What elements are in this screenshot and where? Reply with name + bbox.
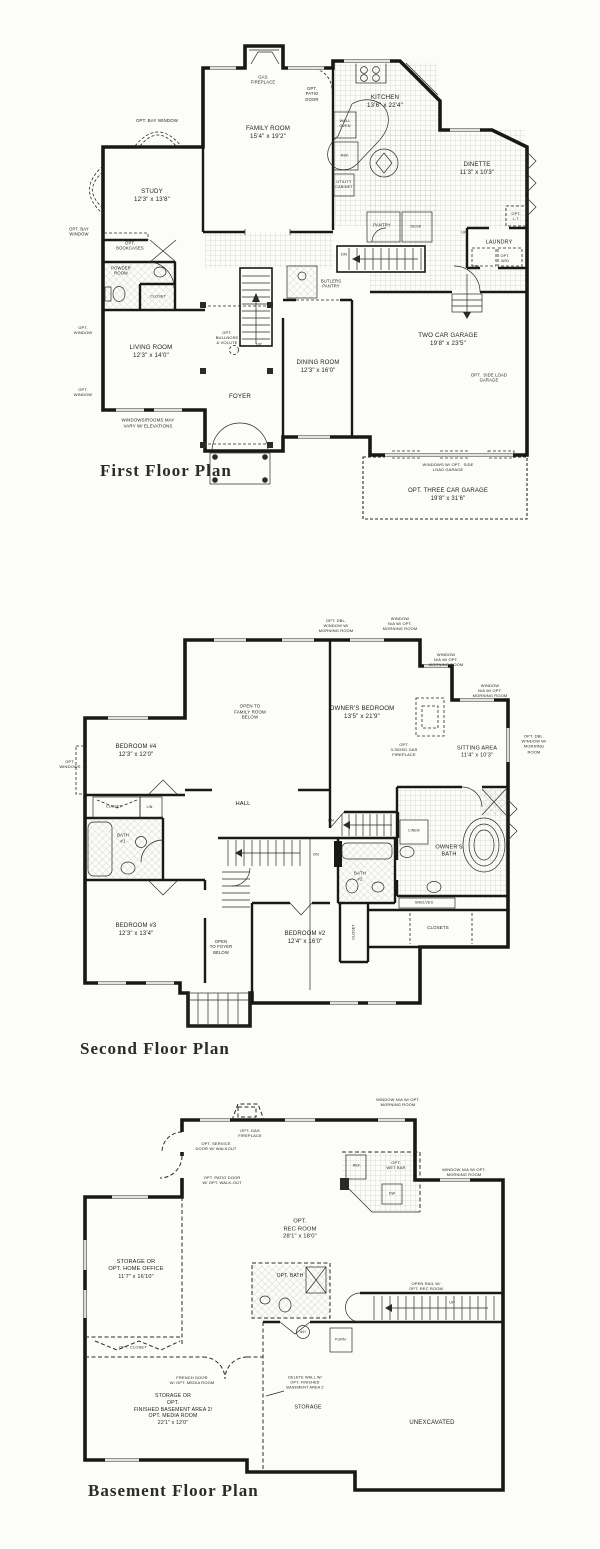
window-na-1-label: WINDOW N/A W/ OPT. MORNING ROOM — [383, 616, 418, 632]
opt-patio-door-label: OPT. PATIO DOOR — [305, 86, 318, 102]
gas-fireplace-label: GAS FIREPLACE — [251, 75, 276, 86]
linen-label: LINEN — [408, 829, 419, 834]
lin-label: LIN. — [147, 805, 154, 809]
second-floor-title: Second Floor Plan — [80, 1038, 230, 1060]
window-na-b1-label: WINDOW N/A W/ OPT. MORNING ROOM — [376, 1097, 420, 1107]
basement-title: Basement Floor Plan — [88, 1480, 259, 1502]
up-b-label: UP — [449, 1301, 454, 1306]
ah-label: A/H — [300, 1330, 306, 1334]
opt-bullnose-label: OPT. BULLNOSE & VOLUTE — [216, 330, 239, 346]
study-label: STUDY 12'3" x 13'8" — [134, 188, 170, 204]
opt-three-car-label: OPT. THREE CAR GARAGE 19'8" x 31'6" — [408, 488, 488, 504]
open-to-foyer-label: OPEN TO FOYER BELOW — [210, 939, 233, 955]
unexcavated-label: UNEXCAVATED — [409, 1420, 454, 1428]
label-layer: GAS FIREPLACEOPT. PATIO DOORFAMILY ROOM … — [0, 0, 600, 1549]
dining-room-label: DINING ROOM 12'3" x 16'0" — [297, 360, 340, 376]
opt-bay-window-left-label: OPT. BAY WINDOW — [69, 227, 89, 238]
opt-lt-label: OPT. L.T. — [511, 212, 520, 222]
opt-service-door-label: OPT. SERVICE DOOR W/ WALKOUT — [196, 1141, 237, 1151]
owners-bedroom-label: OWNER'S BEDROOM 13'5" x 21'9" — [330, 705, 395, 721]
closets-label: CLOSETS — [427, 925, 449, 931]
windows-opt-side-label: WINDOWS W/ OPT. SIDE LOAD GARAGE — [423, 462, 474, 472]
delete-wall-label: DELETE WALL W/ OPT. FINISHED BASEMENT AR… — [286, 1376, 323, 1391]
dn-basement-label: DN — [341, 251, 347, 256]
bedroom2-label: BEDROOM #2 12'4" x 16'0" — [285, 931, 326, 947]
opt-window-1-label: OPT. WINDOW — [74, 325, 92, 335]
dn-garage-label: DN — [473, 263, 479, 268]
owners-bath-label: OWNER'S BATH — [435, 845, 462, 860]
first-floor-title: First Floor Plan — [100, 460, 232, 482]
french-door-label: FRENCH DOOR W/ OPT. MEDIA ROOM — [170, 1375, 215, 1385]
shelves-label: SHELVES — [415, 901, 433, 906]
up-hall-label: UP — [461, 231, 466, 236]
bedroom4-label: BEDROOM #4 12'3" x 12'0" — [116, 744, 157, 760]
up-stairs-label: UP — [256, 341, 262, 346]
desk-label: DESK — [411, 225, 422, 230]
opt-wet-bar-label: OPT. WET BAR — [386, 1160, 405, 1170]
opt-dbl-window-1-label: OPT. DBL. WINDOW W/ MORNING ROOM — [319, 618, 354, 634]
opt-3sided-fireplace-label: OPT. 3-SIDED GAS FIREPLACE — [391, 742, 418, 758]
powder-room-label: POWDER ROOM — [111, 266, 131, 277]
opt-bookcases-label: OPT. BOOKCASES — [116, 241, 144, 252]
ref-b-label: REF. — [353, 1164, 361, 1169]
storage-media-label: STORAGE OR OPT. FINISHED BASEMENT AREA 2… — [134, 1393, 213, 1427]
storage-b-label: STORAGE — [294, 1404, 321, 1411]
closet-b4-label: CLOSET — [106, 805, 122, 810]
bedroom3-label: BEDROOM #3 12'3" x 13'4" — [116, 923, 157, 939]
window-na-2-label: WINDOW N/A W/ OPT. MORNING ROOM — [429, 652, 464, 668]
floorplan-sheet: GAS FIREPLACEOPT. PATIO DOORFAMILY ROOM … — [0, 0, 600, 1549]
opt-bath-b-label: OPT. BATH — [277, 1273, 304, 1280]
opt-bay-window-top-label: OPT. BAY WINDOW — [136, 118, 178, 124]
bath1-label: BATH #1 — [117, 832, 129, 843]
dinette-label: DINETTE 11'3" x 10'3" — [460, 162, 494, 178]
butlers-pantry-label: BUTLERS PANTRY — [321, 279, 341, 290]
ref-label: REF. — [341, 154, 350, 159]
foyer-label: FOYER — [229, 393, 251, 401]
opt-rec-room-label: OPT. REC ROOM 28'1" x 18'0" — [283, 1219, 317, 1242]
open-rail-label: OPEN RAIL W/ OPT. REC ROOM — [409, 1281, 443, 1291]
opt-side-load-label: OPT. SIDE LOAD GARAGE — [471, 373, 507, 384]
window-na-3-label: WINDOW N/A W/ OPT. MORNING ROOM — [473, 683, 508, 699]
window-na-b2-label: WINDOW N/A W/ OPT. MORNING ROOM — [442, 1167, 486, 1177]
closet-f1-label: CLOSET — [150, 295, 166, 300]
pantry-label: PANTRY — [373, 222, 391, 227]
opt-closet-b-label: OPT. CLOSET — [119, 1344, 147, 1349]
wall-oven-label: WALL OVEN — [339, 119, 350, 129]
two-car-garage-label: TWO CAR GARAGE 19'8" x 23'5" — [418, 332, 478, 348]
dn-stairs2-label: DN — [313, 853, 319, 858]
furn-label: FURN. — [335, 1338, 347, 1343]
hall-label: HALL — [235, 801, 250, 809]
windows-vary-label: WINDOWS/ROOMS MAY VARY W/ ELEVATIONS — [122, 417, 175, 428]
opt-gas-fireplace-b-label: OPT. GAS FIREPLACE — [238, 1128, 262, 1138]
opt-window-2-label: OPT. WINDOW — [74, 387, 92, 397]
closet-vert-label: CLOSET — [352, 924, 357, 939]
family-room-label: FAMILY ROOM 15'4" x 19'2" — [246, 125, 290, 141]
opt-windows-label: OPT. WINDOWS — [59, 759, 80, 769]
bath2-label: BATH #2 — [354, 870, 366, 881]
open-to-family-label: OPEN TO FAMILY ROOM BELOW — [234, 703, 266, 720]
kitchen-label: KITCHEN 13'6" x 22'4" — [367, 94, 403, 110]
opt-patio-door-b-label: OPT. PATIO DOOR W/ OPT. WALK-OUT — [202, 1175, 241, 1185]
utility-cabinet-label: UTILITY CABINET — [335, 180, 353, 190]
dn-backstairs-label: DN — [328, 819, 334, 824]
opt-wd-label: OPT. W/D — [500, 254, 509, 264]
sitting-area-label: SITTING AREA 11'4" x 10'3" — [457, 746, 497, 761]
laundry-label: LAUNDRY — [486, 239, 513, 246]
storage-home-office-label: STORAGE OR OPT. HOME OFFICE 11'7" x 16'1… — [108, 1259, 163, 1281]
living-room-label: LIVING ROOM 12'3" x 14'0" — [130, 344, 173, 360]
opt-dbl-window-2-label: OPT. DBL. WINDOW W/ MORNING ROOM — [522, 734, 547, 755]
dw-label: DW — [389, 1192, 395, 1197]
